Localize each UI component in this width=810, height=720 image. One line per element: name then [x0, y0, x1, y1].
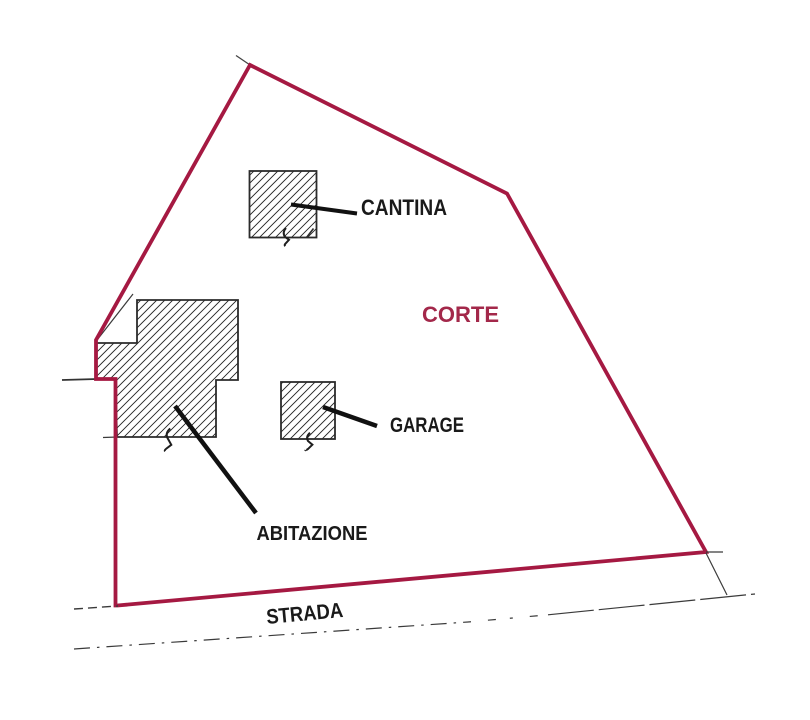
svg-text:ABITAZIONE: ABITAZIONE: [257, 523, 368, 545]
svg-text:CANTINA: CANTINA: [361, 195, 447, 220]
svg-text:STRADA: STRADA: [265, 599, 344, 629]
svg-text:CORTE: CORTE: [422, 302, 499, 327]
svg-text:GARAGE: GARAGE: [390, 414, 464, 437]
